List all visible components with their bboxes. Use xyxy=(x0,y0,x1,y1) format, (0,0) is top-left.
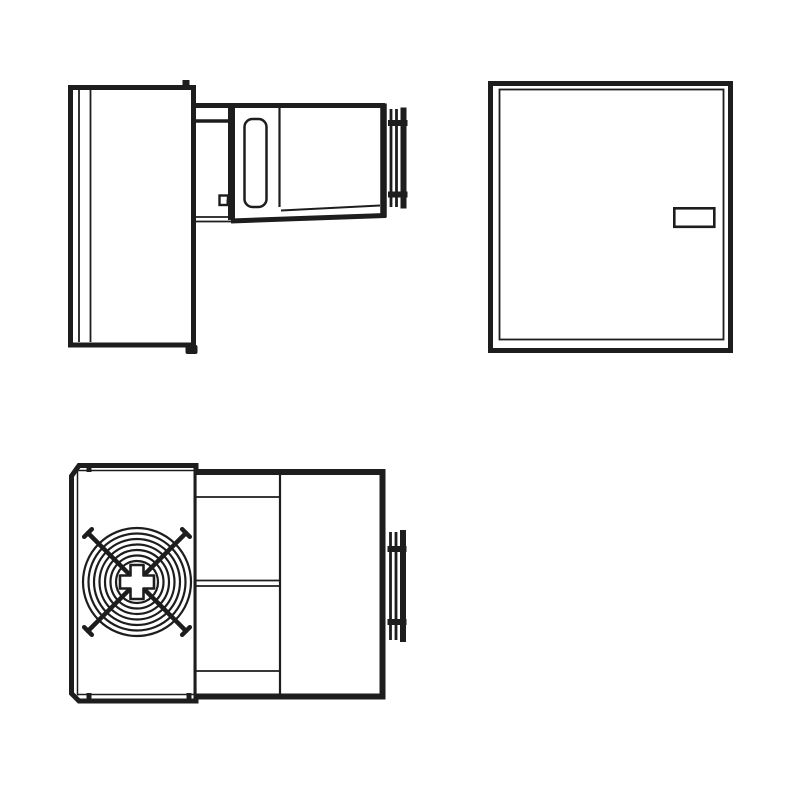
housing-tick xyxy=(87,464,92,472)
top-view-drawing xyxy=(72,464,407,702)
side-view-drawing xyxy=(71,80,408,354)
panel-bottom-foot xyxy=(186,345,198,354)
housing-tick xyxy=(187,693,192,702)
side-view-wall-panel xyxy=(71,88,194,346)
housing-tick xyxy=(87,693,92,702)
drawing-svg xyxy=(0,0,800,800)
rear-panel-view-drawing xyxy=(491,84,731,351)
panel-top-tab xyxy=(183,80,190,87)
unit-vent-slot xyxy=(245,119,267,207)
top-view-flange xyxy=(388,530,407,642)
latch-pin xyxy=(227,200,232,206)
rear-panel-handle xyxy=(674,208,714,227)
fan-grille-icon xyxy=(83,528,191,636)
unit-bottom-edge xyxy=(231,216,386,222)
unit-body-outline xyxy=(196,472,383,697)
technical-drawing-canvas xyxy=(0,0,800,800)
side-view-flange xyxy=(388,108,408,209)
unit-bottom-inner-line xyxy=(281,206,380,211)
